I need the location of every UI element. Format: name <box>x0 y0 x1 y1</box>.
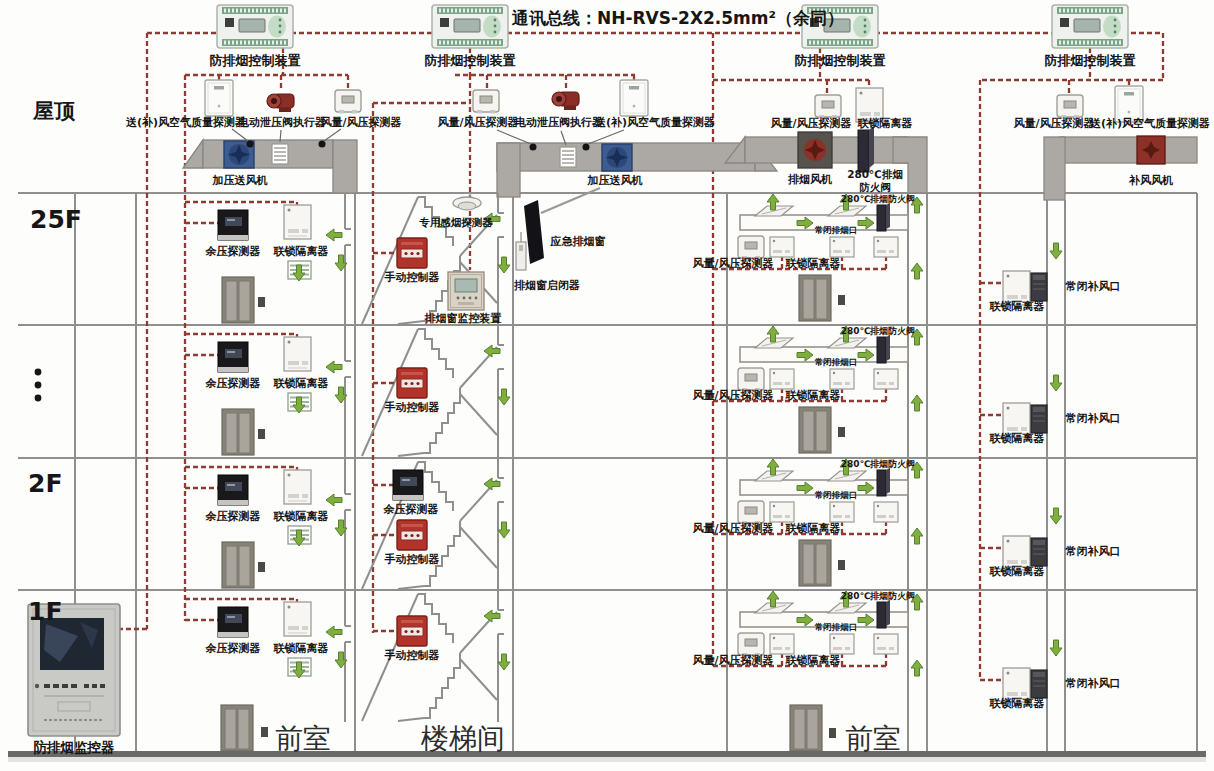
floor-label-25f: 25F <box>30 205 82 234</box>
bus-title: 通讯总线：NH-RVS-2X2.5mm²（余同） <box>511 8 844 28</box>
air-quality-detector <box>205 80 233 116</box>
front-room-label-left: 前室 <box>275 722 331 755</box>
stairwell-label: 楼梯间 <box>420 722 505 755</box>
stairwell-floor-mid <box>362 325 510 457</box>
flow-pressure-detector <box>335 90 361 114</box>
flow-pressure-detector <box>473 90 499 114</box>
front-room-floor-1 <box>185 590 351 722</box>
makeup-floor-mid <box>980 375 1121 445</box>
flow-pressure-detector-label: 风量/风压探测器 <box>436 116 518 129</box>
stairwell-floor-2 <box>362 458 510 590</box>
dedicated-smoke-detector-label: 专用感烟探测器 <box>418 216 493 228</box>
flow-pressure-detector <box>815 95 841 119</box>
duct-louver <box>560 147 576 167</box>
air-quality-detector-label: 送(补)风空气质量探测器 <box>594 116 715 129</box>
dedicated-smoke-detector <box>453 197 481 210</box>
relief-valve-actuator-label: 电动泄压阀执行器 <box>238 116 326 129</box>
floor-label-roof: 屋顶 <box>32 99 76 123</box>
flow-pressure-detector-label: 风量/风压探测器 <box>769 117 851 130</box>
duct-sensor-dot <box>583 144 590 151</box>
smoke-controller-4 <box>1052 5 1128 48</box>
makeup-floor-2 <box>980 508 1121 578</box>
relief-valve-actuator <box>267 94 294 112</box>
manual-controller <box>397 616 427 646</box>
flow-pressure-detector-label: 风量/风压探测器 <box>1012 117 1094 130</box>
duct-louver <box>272 144 288 164</box>
front-room-label-right: 前室 <box>845 722 901 755</box>
rooftop-makeup: 风量/风压探测器 送(补)风空气质量探测器 补风风机 <box>1012 86 1210 200</box>
air-quality-detector-label: 送(补)风空气质量探测器 <box>125 116 246 129</box>
flow-pressure-detector <box>1057 95 1083 119</box>
manual-controller <box>397 368 427 398</box>
duct-sensor-dot <box>247 141 254 148</box>
air-quality-detector-label: 送(补)风空气质量探测器 <box>1089 117 1210 130</box>
controller-label: 防排烟控制装置 <box>425 53 516 68</box>
smoke-window-actuator-label: 排烟窗启闭器 <box>513 279 580 292</box>
fire-damper-label-line2: 防火阀 <box>859 181 891 193</box>
monitor-host-label: 防排烟监控器 <box>34 739 116 755</box>
residual-pressure-detector-label: 余压探测器 <box>383 503 439 516</box>
smoke-controller-2 <box>432 5 508 48</box>
front-room-floor-mid <box>185 325 351 457</box>
smoke-control-system-diagram: 余压探测器 联锁隔离器 280℃排烟防火阀 常闭排烟口 风量/风压探测器 联锁隔… <box>0 0 1214 771</box>
residual-pressure-detector <box>393 470 423 500</box>
front-room-floor-2 <box>185 458 351 590</box>
makeup-fan <box>1137 136 1165 164</box>
floor-label-2f: 2F <box>28 469 62 498</box>
controller-label: 防排烟控制装置 <box>210 53 301 68</box>
makeup-floor-25 <box>980 243 1121 313</box>
manual-controller-label: 手动控制器 <box>384 649 440 662</box>
controller-label: 防排烟控制装置 <box>795 53 886 68</box>
ground-shadow <box>8 757 1206 762</box>
emergency-smoke-window <box>524 200 544 264</box>
makeup-fan-label: 补风风机 <box>1128 174 1173 187</box>
stairwell-floor-25 <box>362 193 510 325</box>
pressurization-fan-label: 加压送风机 <box>212 174 268 187</box>
fire-damper-rooftop <box>858 126 874 172</box>
floor-label-1f: 1F <box>28 597 62 626</box>
front-room-floor-25 <box>185 193 351 325</box>
interlock-isolator-label: 联锁隔离器 <box>857 117 913 130</box>
manual-controller-label: 手动控制器 <box>384 553 440 566</box>
smoke-controller-1 <box>217 5 293 48</box>
air-quality-detector <box>620 80 648 116</box>
communication-bus <box>120 33 1163 680</box>
manual-controller-label: 手动控制器 <box>384 401 440 414</box>
manual-controller-label: 手动控制器 <box>384 271 440 284</box>
pressurization-fan-label: 加压送风机 <box>587 174 643 187</box>
monitor-host-panel: 防排烟监控器 <box>28 604 120 755</box>
makeup-floor-1 <box>980 640 1121 710</box>
exhaust-fan <box>798 132 832 168</box>
smoke-window-monitor <box>448 272 484 310</box>
emergency-smoke-window-label: 应急排烟窗 <box>550 235 606 248</box>
smoke-window-group: 专用感烟探测器 排烟窗监控装置 应急排烟窗 排烟窗启闭器 <box>418 188 605 325</box>
exhaust-fan-label: 排烟风机 <box>787 173 832 186</box>
relief-valve-actuator-label: 电动泄压阀执行器 <box>515 116 603 129</box>
pressurization-fan <box>602 144 632 171</box>
controller-label: 防排烟控制装置 <box>1045 53 1136 68</box>
flow-pressure-detector-label: 风量/风压探测器 <box>319 116 401 129</box>
diagram-canvas: 余压探测器 联锁隔离器 280℃排烟防火阀 常闭排烟口 风量/风压探测器 联锁隔… <box>0 0 1214 771</box>
smoke-window-monitor-label: 排烟窗监控装置 <box>424 312 502 325</box>
ground-line <box>8 751 1206 757</box>
rooftop-pressurization-2: 风量/风压探测器 电动泄压阀执行器 送(补)风空气质量探测器 加压送风机 <box>436 80 777 197</box>
duct-sensor-dot <box>319 141 326 148</box>
manual-controller <box>397 238 427 268</box>
manual-controller <box>397 520 427 550</box>
rooftop-pressurization-1: 送(补)风空气质量探测器 电动泄压阀执行器 风量/风压探测器 加压送风机 <box>125 80 402 193</box>
relief-valve-actuator <box>552 92 579 110</box>
fire-damper-label-line1: 280℃排烟 <box>847 168 903 180</box>
smoke-window-actuator <box>516 242 526 270</box>
duct-sensor-dot <box>530 144 537 151</box>
floor-ellipsis <box>35 369 42 402</box>
rooftop-exhaust: 风量/风压探测器 联锁隔离器 排烟风机 280℃排烟 防火阀 <box>725 88 927 193</box>
